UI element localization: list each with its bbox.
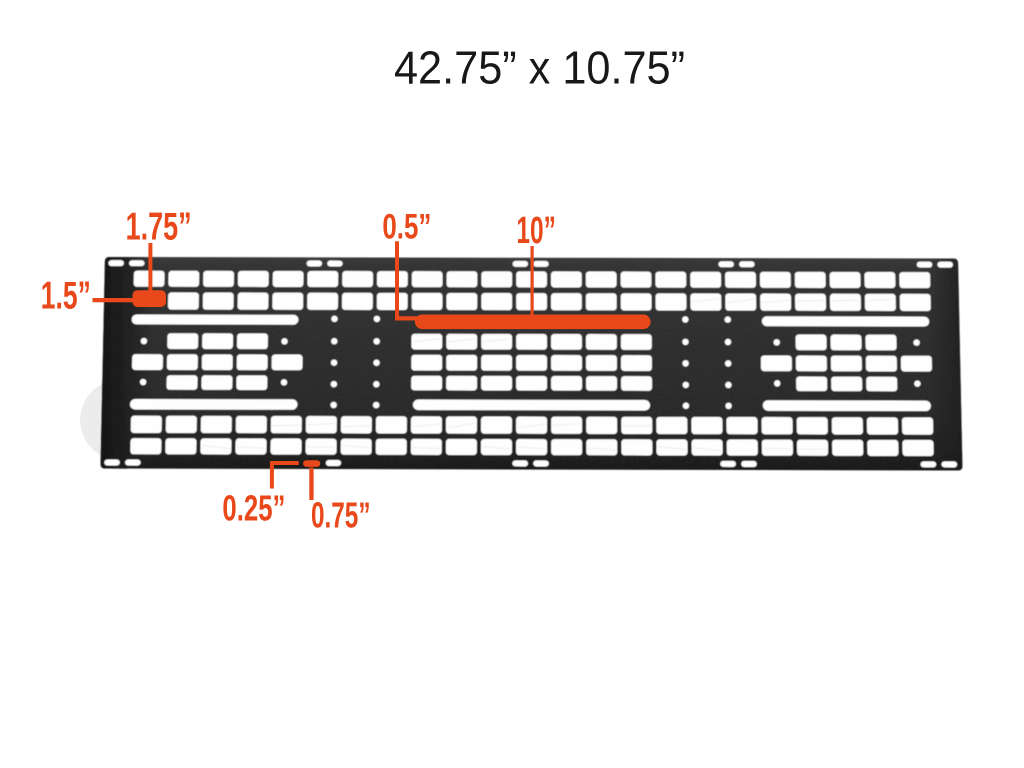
svg-text:0.5”: 0.5”: [382, 207, 431, 246]
svg-text:1.75”: 1.75”: [126, 205, 192, 248]
svg-text:0.25”: 0.25”: [222, 488, 285, 529]
svg-text:1.5”: 1.5”: [41, 274, 91, 317]
svg-text:42.75” x 10.75”: 42.75” x 10.75”: [394, 41, 685, 93]
svg-text:10”: 10”: [516, 210, 556, 252]
svg-text:0.75”: 0.75”: [311, 495, 371, 536]
